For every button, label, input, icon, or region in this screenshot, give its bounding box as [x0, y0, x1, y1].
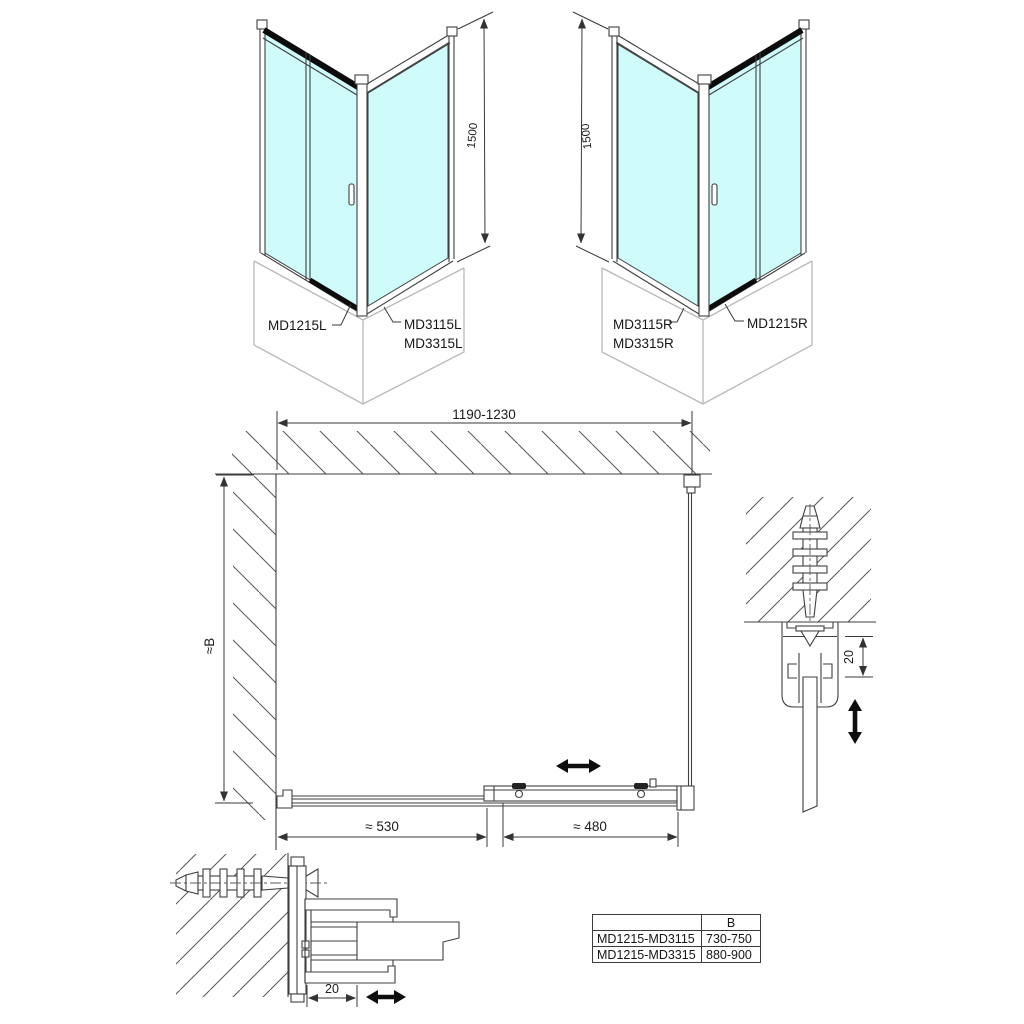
size-table-models-cell: MD1215-MD3115 — [593, 931, 702, 947]
plan-track-assembly — [277, 475, 700, 810]
size-table-b-header: B — [702, 915, 761, 931]
plan-corner-post — [677, 786, 694, 810]
size-table-row: MD1215-MD3315 880-900 — [593, 947, 761, 963]
size-table-header-row: B — [593, 915, 761, 931]
technical-drawing-page: 1500 MD1215L MD3115L MD3315L 1500 MD3115… — [0, 0, 1024, 1024]
dim-depth-text: ≈B — [202, 638, 217, 654]
plan-wall-profile — [277, 790, 292, 808]
leader-md1215l — [332, 304, 351, 325]
label-md3315r: MD3315R — [613, 336, 674, 351]
roller-stopper — [650, 779, 656, 787]
vertical-adjust-arrow — [848, 699, 862, 744]
roller-right — [634, 783, 648, 789]
dim-1500-right: 1500 — [580, 123, 595, 150]
dim-adjust-right-text: 20 — [842, 650, 856, 664]
iso-view-left: 1500 MD1215L MD3115L MD3315L — [254, 12, 493, 404]
roller-left — [512, 783, 526, 789]
screw-flange — [796, 626, 824, 631]
detail-right-dimension: 20 — [842, 637, 873, 678]
detail-wall-profile-right: 20 — [744, 497, 876, 812]
size-table-empty-header — [593, 915, 702, 931]
label-md1215l: MD1215L — [268, 318, 327, 333]
size-table-models-cell: MD1215-MD3315 — [593, 947, 702, 963]
detail-left-dimension: 20 — [307, 982, 357, 1007]
plan-side-anchor — [684, 475, 700, 487]
dim-width-text: 1190-1230 — [452, 407, 516, 422]
label-md3115l: MD3115L — [404, 317, 462, 332]
horizontal-adjust-arrow — [366, 990, 406, 1004]
dim-1500-left: 1500 — [466, 122, 481, 149]
technical-drawing-canvas: 1500 MD1215L MD3115L MD3315L 1500 MD3115… — [0, 0, 1024, 1024]
dim-fixed-text: ≈ 530 — [365, 819, 399, 834]
glass-pane-section — [803, 677, 817, 812]
plan-bottom-dimensions: ≈ 530 ≈ 480 — [278, 803, 678, 847]
slide-direction-arrow — [556, 759, 601, 773]
top-wall-hatch — [232, 431, 710, 474]
size-table-range-cell: 730-750 — [702, 931, 761, 947]
left-wall-hatch — [233, 476, 276, 820]
size-table-row: MD1215-MD3115 730-750 — [593, 931, 761, 947]
size-table-range-cell: 880-900 — [702, 947, 761, 963]
iso-view-right: 1500 MD3115R MD3315R MD1215R — [573, 12, 812, 404]
label-md3315l: MD3315L — [404, 336, 463, 351]
dim-slide-text: ≈ 480 — [573, 819, 607, 834]
leader-md3115l — [384, 307, 401, 322]
label-md1215r: MD1215R — [747, 316, 808, 331]
plan-side-panel-lines — [689, 493, 692, 786]
panel-profile-section — [305, 899, 459, 983]
size-table: B MD1215-MD3115 730-750 MD1215-MD3315 88… — [592, 914, 761, 963]
plan-view: 1190-1230 ≈B — [202, 407, 712, 850]
dim-adjust-left-text: 20 — [325, 982, 339, 996]
detail-wall-profile-bottom-left: 20 — [170, 853, 459, 1007]
label-md3115r: MD3115R — [613, 317, 673, 332]
